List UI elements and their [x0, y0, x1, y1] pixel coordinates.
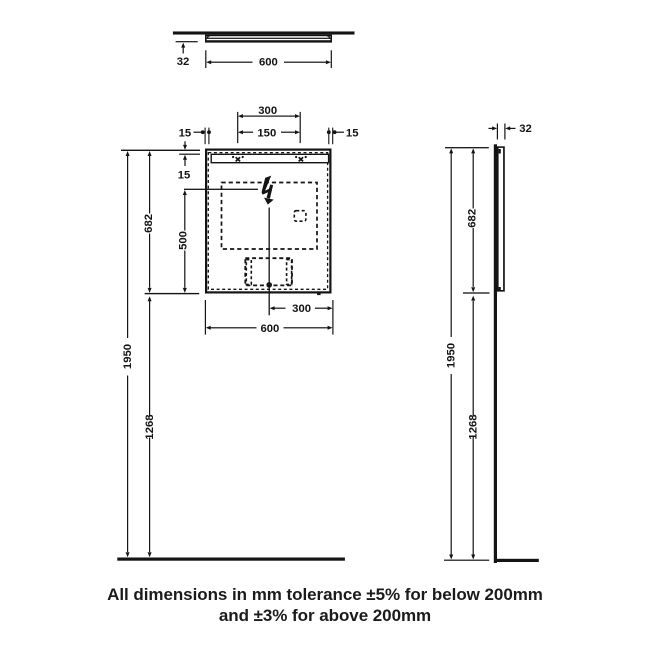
- svg-text:150: 150: [257, 128, 276, 140]
- svg-text:15: 15: [346, 128, 359, 140]
- svg-text:300: 300: [258, 105, 277, 117]
- svg-text:500: 500: [178, 231, 190, 250]
- svg-text:1268: 1268: [467, 414, 479, 439]
- svg-text:600: 600: [260, 323, 279, 335]
- svg-text:300: 300: [292, 303, 311, 315]
- svg-text:1950: 1950: [445, 343, 457, 368]
- svg-text:682: 682: [467, 209, 479, 228]
- svg-text:32: 32: [177, 56, 190, 68]
- svg-text:32: 32: [519, 123, 532, 135]
- svg-text:15: 15: [178, 170, 191, 182]
- svg-text:1950: 1950: [122, 344, 134, 369]
- svg-text:15: 15: [179, 128, 192, 140]
- svg-text:600: 600: [259, 57, 278, 69]
- svg-text:1268: 1268: [144, 414, 156, 439]
- svg-text:682: 682: [143, 214, 155, 233]
